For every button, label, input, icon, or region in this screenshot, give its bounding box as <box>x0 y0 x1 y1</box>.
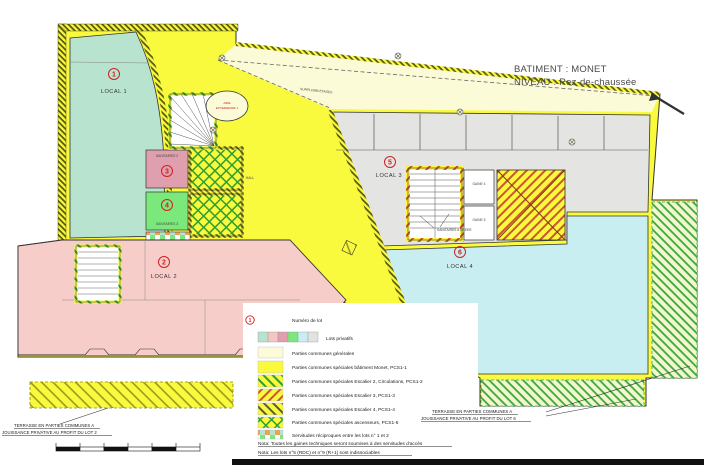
hall-label: HALL <box>246 176 254 180</box>
legend-item-5-label: Parties communes spéciales Escalier 3, P… <box>292 393 395 399</box>
sanitaires-3-room: 4 SANITAIRES 3 <box>146 192 188 230</box>
terrace-right-strip <box>652 202 697 378</box>
legend-note-2: Nota: Les lots n°5 (RDC) et n°9 (R+1) so… <box>258 450 380 456</box>
gaine-4-label: GAINE 4 <box>472 182 485 186</box>
sanitaires-2-room: SANITAIRES 2 3 <box>146 150 188 188</box>
legend-item-0-label: Numéro de lot <box>292 318 323 324</box>
legend-private-lot-swatches <box>258 332 318 342</box>
terrace-left-line2: JOUISSANCE PRIVATIVE AU PROFIT DU LOT 2 <box>2 430 97 435</box>
lot-3-number: 3 <box>165 169 169 176</box>
building-title: BATIMENT : MONET <box>514 64 607 75</box>
top-wall-band <box>58 24 238 31</box>
legend-swatch-general <box>258 347 283 358</box>
terrace-right-line1: TERRASSE EN PARTIES COMMUNES A <box>432 409 512 414</box>
legend-swatch-escalier4 <box>258 403 283 415</box>
exterior-area-blob: AIRE EXTERIEURE 1 <box>206 91 248 121</box>
legend: 1 Numéro de lot Lots privatifs Parties c… <box>243 303 478 456</box>
legend-item-1-label: Lots privatifs <box>326 336 354 342</box>
legend-item-3-label: Parties communes spéciales bâtiment Mone… <box>292 365 407 371</box>
legend-note-1: Nota: Toutes les gaines techniques seron… <box>258 441 423 447</box>
exterior-area-label-1: AIRE <box>223 101 230 105</box>
level-title: NIVEAU : Rez-de-chaussée <box>514 77 637 88</box>
gaine-5-label: GAINE 5 <box>472 218 485 222</box>
terrace-right-line2: JOUISSANCE PRIVATIVE AU PROFIT DU LOT 6 <box>421 416 516 421</box>
local-1-label: LOCAL 1 <box>101 89 127 95</box>
bottom-frame-bar <box>232 459 704 465</box>
legend-item-8-label: Servitudes réciproques entre les lots n°… <box>292 433 389 439</box>
terrace-left-line1: TERRASSE EN PARTIES COMMUNES A <box>14 423 94 428</box>
lot-5-number: 5 <box>388 160 392 167</box>
terrace-left-callout: TERRASSE EN PARTIES COMMUNES A JOUISSANC… <box>2 408 112 436</box>
local-4-label: LOCAL 4 <box>447 264 473 270</box>
lot-1-number: 1 <box>112 72 116 79</box>
legend-swatch-escalier2 <box>258 375 283 387</box>
lot-4-number: 4 <box>165 203 169 210</box>
exterior-area-label-2: EXTERIEURE 1 <box>216 106 239 110</box>
legend-swatch-escalier3 <box>258 389 283 401</box>
legend-item-6-label: Parties communes spéciales Escalier 4, P… <box>292 407 395 413</box>
local-2-label: LOCAL 2 <box>151 274 177 280</box>
stair-escalier-4 <box>497 170 565 240</box>
terrace-left-strip <box>30 382 233 408</box>
floor-plan-page: GAINE 4 GAINE 5 SANITAIRES 2 3 4 <box>0 0 704 465</box>
left-wall-band <box>58 24 66 240</box>
legend-swatch-servitudes <box>258 430 283 439</box>
legend-swatch-ascenseurs <box>258 417 283 428</box>
title-block: BATIMENT : MONET NIVEAU : Rez-de-chaussé… <box>514 64 637 88</box>
legend-item-2-label: Parties communes générales <box>292 351 355 357</box>
sanitaires-a-creer-label: SANITAIRES A CREER <box>437 228 472 232</box>
stairwell-local-2 <box>76 246 120 302</box>
legend-lot-circle-number: 1 <box>249 318 252 324</box>
legend-item-7-label: Parties communes spéciales ascenseurs, P… <box>292 420 399 426</box>
floor-plan-drawing: GAINE 4 GAINE 5 SANITAIRES 2 3 4 <box>0 0 704 465</box>
legend-item-4-label: Parties communes spéciales Escalier 2, C… <box>292 379 423 385</box>
scale-bar <box>56 443 200 451</box>
lot-2-number: 2 <box>162 260 166 267</box>
lot-6-number: 6 <box>458 250 462 257</box>
legend-swatch-monet <box>258 361 283 373</box>
local-3-label: LOCAL 3 <box>376 173 402 179</box>
sanitaires-3-label: SANITAIRES 3 <box>156 222 178 226</box>
sanitaires-2-label: SANITAIRES 2 <box>156 154 178 158</box>
